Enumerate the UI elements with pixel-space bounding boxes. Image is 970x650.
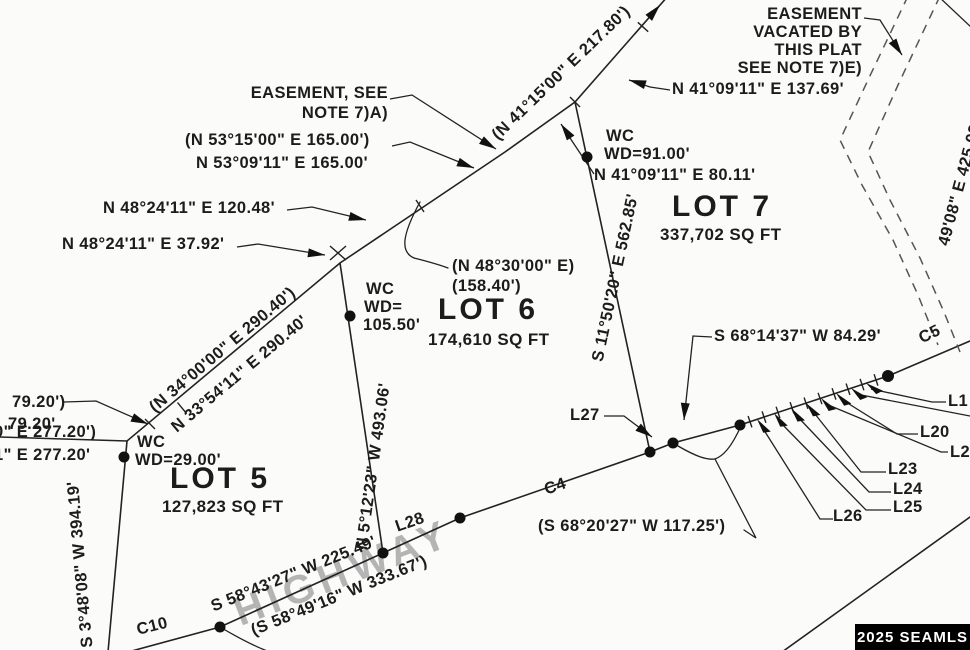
distance-7920a: 79.20') <box>12 393 66 412</box>
bearing-n4109-137: N 41°09'11" E 137.69' <box>672 80 844 99</box>
wc3-wd-label: WD=29.00' <box>135 451 221 470</box>
wc2-wd2-label: 105.50' <box>363 316 420 335</box>
bearing-s6814: S 68°14'37" W 84.29' <box>714 327 881 346</box>
wc1-label: WC <box>606 127 634 146</box>
line-l23: L23 <box>888 460 918 479</box>
bearing-n4830: (N 48°30'00" E) <box>452 257 574 276</box>
distance-27720a: 0" E 277.20') <box>0 423 96 442</box>
line-l27: L27 <box>570 406 600 425</box>
line-l24: L24 <box>893 480 923 499</box>
wc2-wd-label: WD= <box>364 298 402 317</box>
lot5-area: 127,823 SQ FT <box>162 497 283 517</box>
leader-l25 <box>779 421 891 510</box>
easement-note-a-line2: NOTE 7)A) <box>238 104 388 123</box>
bearing-s6820: (S 68°20'27" W 117.25') <box>538 517 725 536</box>
watermark-badge: 2025 SEAMLS <box>855 624 970 650</box>
easement-note-e-line2: VACATED BY <box>730 23 862 42</box>
bearing-n4824-120: N 48°24'11" E 120.48' <box>103 199 275 218</box>
bearing-n4824-37: N 48°24'11" E 37.92' <box>62 235 224 254</box>
lot7-name: LOT 7 <box>672 190 772 224</box>
bearing-n4109-80: N 41°09'11" E 80.11' <box>594 166 755 185</box>
leader-easement-a <box>390 95 496 149</box>
bearing-n5315: (N 53°15'00" E 165.00') <box>185 131 370 150</box>
lot7-area: 337,702 SQ FT <box>660 225 781 245</box>
easement-note-e-line4: SEE NOTE 7)E) <box>730 59 862 78</box>
wc1-wd-label: WD=91.00' <box>604 145 690 164</box>
line-l26: L26 <box>833 507 863 526</box>
brace-left <box>678 446 715 459</box>
easement-note-a-line1: EASEMENT, SEE <box>238 84 388 103</box>
wc3-label: WC <box>137 433 165 452</box>
wc2-label: WC <box>366 280 394 299</box>
lot6-area: 174,610 SQ FT <box>428 330 549 350</box>
lot6-name: LOT 6 <box>438 293 538 327</box>
bearing-n5309: N 53°09'11" E 165.00' <box>196 154 368 173</box>
line-l20: L20 <box>920 423 950 442</box>
easement-dash-2 <box>868 0 960 352</box>
corner-stub-line <box>938 0 970 28</box>
line-l2-cut: L2 <box>950 443 970 462</box>
line-l1: L1 <box>948 392 968 411</box>
plat-map: HIGHWAY <box>0 0 970 650</box>
curve-leader-158-b <box>414 258 448 268</box>
distance-27720b: 1" E 277.20' <box>0 446 90 465</box>
line-l25: L25 <box>893 498 923 517</box>
easement-note-e-line1: EASEMENT <box>730 5 862 24</box>
monument-dots <box>119 152 895 633</box>
leader-l23 <box>811 409 886 472</box>
west-boundary-line <box>108 441 127 650</box>
easement-note-e-line3: THIS PLAT <box>730 41 862 60</box>
